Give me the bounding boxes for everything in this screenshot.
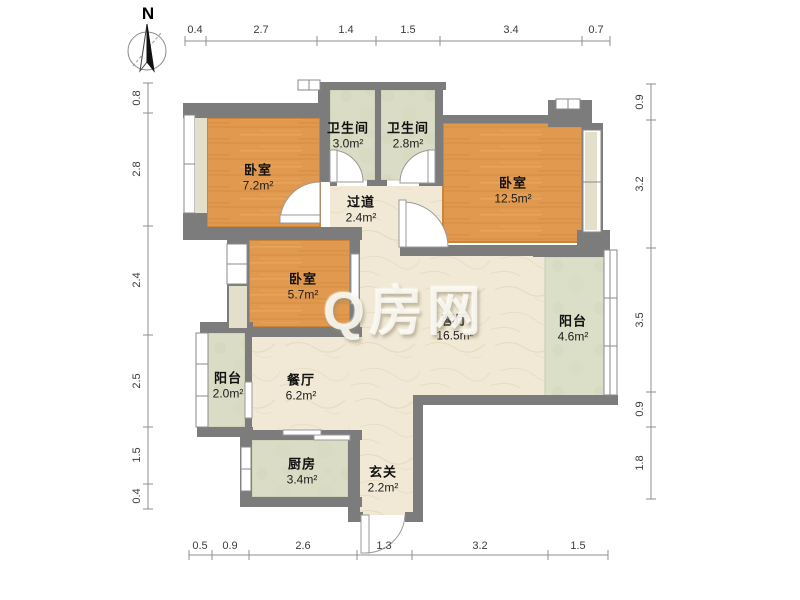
door-bedroom-middle	[351, 254, 359, 304]
dim-label-top-3: 1.4	[338, 24, 353, 36]
compass-n-label: N	[142, 4, 154, 24]
room-label-balcony-left: 阳台 2.0m²	[213, 371, 244, 402]
window-top-small	[298, 80, 320, 90]
dim-label-right-4: 0.9	[634, 401, 646, 416]
room-label-bathroom-right: 卫生间 2.8m²	[387, 121, 429, 152]
window-balcony-left	[196, 333, 208, 427]
dim-label-left-4: 2.5	[131, 373, 143, 388]
dim-label-bottom-2: 0.9	[222, 540, 237, 552]
dim-label-bottom-1: 0.5	[192, 540, 207, 552]
room-label-balcony-right: 阳台 4.6m²	[558, 314, 589, 345]
door-balcony-left	[245, 382, 252, 418]
dim-label-left-6: 0.4	[131, 488, 143, 503]
window-bedroom-middle	[227, 244, 247, 328]
room-label-kitchen: 厨房 3.4m²	[287, 457, 318, 488]
room-label-dining-room: 餐厅 6.2m²	[286, 373, 317, 404]
window-bedroom-right	[583, 130, 601, 232]
dim-label-bottom-6: 1.5	[570, 540, 585, 552]
dim-label-left-1: 0.8	[131, 90, 143, 105]
room-label-entry: 玄关 2.2m²	[368, 465, 399, 496]
dim-label-left-2: 2.8	[131, 161, 143, 176]
room-label-hallway: 过道 2.4m²	[346, 195, 377, 226]
dim-label-left-3: 2.4	[131, 272, 143, 287]
compass-icon	[128, 24, 166, 71]
room-label-living-room: 客厅 16.5m²	[436, 313, 473, 344]
dim-label-left-5: 1.5	[131, 447, 143, 462]
room-label-bedroom-right: 卧室 12.5m²	[494, 176, 531, 207]
room-label-bedroom-top-left: 卧室 7.2m²	[243, 163, 274, 194]
window-bedroom-top-left	[184, 115, 207, 213]
floorplan-canvas: N 卧室 7.2m² 卫生间 3.0m² 卫生间 2.8m² 卧室 12.5m²…	[0, 0, 800, 600]
dim-label-bottom-5: 3.2	[472, 540, 487, 552]
room-label-bedroom-middle: 卧室 5.7m²	[288, 272, 319, 303]
dim-label-right-1: 0.9	[634, 94, 646, 109]
dim-label-bottom-3: 2.6	[295, 540, 310, 552]
window-balcony-right	[604, 250, 617, 395]
window-kitchen	[241, 447, 251, 491]
window-top-right-small	[556, 99, 580, 109]
dim-label-top-2: 2.7	[253, 24, 268, 36]
dim-label-top-4: 1.5	[400, 24, 415, 36]
floorplan-drawing	[0, 0, 800, 600]
dim-label-right-5: 1.8	[634, 455, 646, 470]
dim-label-right-2: 3.2	[634, 176, 646, 191]
dim-label-top-1: 0.4	[187, 24, 202, 36]
dim-label-bottom-4: 1.3	[376, 540, 391, 552]
room-label-bathroom-left: 卫生间 3.0m²	[327, 121, 369, 152]
dim-label-right-3: 3.5	[634, 312, 646, 327]
dim-label-top-6: 0.7	[588, 24, 603, 36]
dim-label-top-5: 3.4	[503, 24, 518, 36]
